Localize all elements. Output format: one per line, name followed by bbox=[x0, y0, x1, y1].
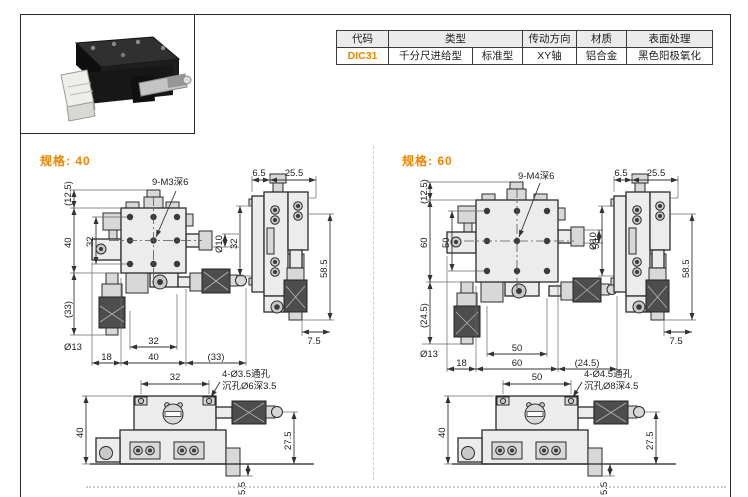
dim-label: 50 bbox=[512, 343, 523, 354]
dim-label: Ø13 bbox=[420, 349, 438, 360]
dim-label: 6.5 bbox=[252, 168, 265, 179]
dim-label: 32 bbox=[170, 372, 181, 383]
dim-label: (33) bbox=[63, 301, 74, 318]
cell-code: DIC31 bbox=[337, 48, 389, 65]
front-view-60: 9-M4深6 Ø10 (12.5) 60 50 (24.5) 50 18 60 bbox=[419, 171, 617, 372]
front-view-40: 9-M3深6 Ø10 (12.5) 40 32 (33) 32 18 40 bbox=[63, 177, 247, 366]
dim-label: 50 bbox=[441, 237, 452, 248]
dim-label: 58.5 bbox=[319, 260, 330, 279]
cell-drive: XY轴 bbox=[523, 48, 577, 65]
dim-label: 60 bbox=[512, 358, 523, 369]
dim-label: 60 bbox=[419, 237, 430, 248]
dim-label: (33) bbox=[208, 352, 225, 363]
thread-note-label: 9-M3深6 bbox=[152, 177, 188, 188]
thread-note-label: 9-M4深6 bbox=[518, 171, 554, 182]
col-header-finish: 表面处理 bbox=[627, 31, 713, 48]
cell-type-main: 千分尺进给型 bbox=[389, 48, 473, 65]
dim-label: 32 bbox=[85, 236, 96, 247]
spec40-drawing: 9-M3深6 Ø10 (12.5) 40 32 (33) 32 18 40 bbox=[26, 166, 376, 497]
side-view-60: 6.5 25.5 50 58.5 7.5 bbox=[591, 168, 696, 347]
dim-label: 6.5 bbox=[614, 168, 627, 179]
col-header-code: 代码 bbox=[337, 31, 389, 48]
dim-label: 40 bbox=[63, 237, 74, 248]
cell-finish: 黑色阳极氧化 bbox=[627, 48, 713, 65]
dim-label: 32 bbox=[229, 238, 240, 249]
dim-label: 7.5 bbox=[669, 336, 682, 347]
spec60-drawing: 9-M4深6 Ø10 (12.5) 60 50 (24.5) 50 18 60 bbox=[388, 166, 738, 497]
dim-label: Ø10 bbox=[214, 235, 225, 253]
dim-label: 50 bbox=[591, 238, 602, 249]
spec-table: 代码 类型 传动方向 材质 表面处理 DIC31 千分尺进给型 标准型 XY轴 … bbox=[336, 30, 713, 65]
cell-type-sub: 标准型 bbox=[473, 48, 523, 65]
dim-label: 32 bbox=[148, 336, 159, 347]
dim-label: 5.5 bbox=[237, 482, 248, 495]
col-header-type: 类型 bbox=[389, 31, 523, 48]
dim-label: (24.5) bbox=[575, 358, 600, 369]
dim-label: (12.5) bbox=[63, 181, 74, 206]
hole-note-label: 4-Ø4.5通孔 bbox=[584, 369, 633, 380]
col-header-material: 材质 bbox=[577, 31, 627, 48]
side-view-40: 6.5 25.5 32 58.5 7.5 bbox=[229, 168, 334, 347]
dim-label: 18 bbox=[101, 352, 112, 363]
dim-label: Ø13 bbox=[64, 342, 82, 353]
dim-label: 25.5 bbox=[647, 168, 666, 179]
dim-label: 40 bbox=[148, 352, 159, 363]
dim-label: 7.5 bbox=[307, 336, 320, 347]
dim-label: 27.5 bbox=[645, 432, 656, 451]
dim-label: (24.5) bbox=[419, 303, 430, 328]
dim-label: 58.5 bbox=[681, 260, 692, 279]
bottom-view-60: 50 4-Ø4.5通孔 沉孔Ø8深4.5 40 27.5 5.5 bbox=[437, 369, 676, 495]
cbore-note-label: 沉孔Ø8深4.5 bbox=[584, 381, 638, 392]
hole-note-label: 4-Ø3.5通孔 bbox=[222, 369, 271, 380]
product-photo-box bbox=[20, 14, 195, 134]
dim-label: (12.5) bbox=[419, 179, 430, 204]
cbore-note-label: 沉孔Ø6深3.5 bbox=[222, 381, 276, 392]
dim-label: 18 bbox=[456, 358, 467, 369]
dim-label: 40 bbox=[437, 427, 448, 438]
dim-label: 25.5 bbox=[285, 168, 304, 179]
dim-label: 50 bbox=[532, 372, 543, 383]
product-photo bbox=[21, 15, 193, 132]
catalog-page: 代码 类型 传动方向 材质 表面处理 DIC31 千分尺进给型 标准型 XY轴 … bbox=[0, 0, 748, 497]
dim-label: 40 bbox=[75, 427, 86, 438]
dim-label: 27.5 bbox=[283, 432, 294, 451]
dim-label: 5.5 bbox=[599, 482, 610, 495]
col-header-drive: 传动方向 bbox=[523, 31, 577, 48]
cell-material: 铝合金 bbox=[577, 48, 627, 65]
bottom-view-40: 32 4-Ø3.5通孔 沉孔Ø6深3.5 40 27.5 5.5 bbox=[75, 369, 314, 495]
